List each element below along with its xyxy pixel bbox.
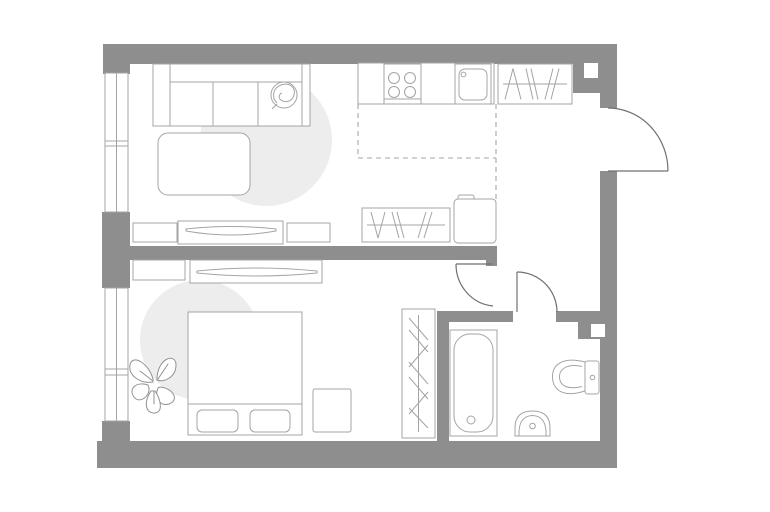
- bedroom-window: [105, 288, 128, 421]
- nightstand-icon: [313, 389, 351, 432]
- wall-bottom: [97, 441, 617, 468]
- tv-icon: [197, 268, 317, 276]
- kitchen-zone-dashed-boundary: [358, 104, 496, 199]
- floor-plan-drawing: [0, 0, 770, 512]
- bedroom-door-swing-icon: [456, 264, 493, 306]
- wall-bathroom-top-right: [556, 311, 617, 322]
- coffee-table-icon: [158, 133, 250, 195]
- duct-shaft-icon: [591, 324, 605, 337]
- wall-top: [103, 44, 617, 64]
- lower-wardrobe-hanging-clothes-icon: [362, 208, 450, 242]
- wall-bathroom-left: [437, 311, 449, 441]
- wall-middle-step: [486, 246, 497, 266]
- wall-middle: [127, 246, 497, 260]
- toilet-icon: [552, 360, 599, 394]
- wardrobe-hanging-clothes-icon: [498, 64, 572, 104]
- kitchen-counter-icon: [358, 63, 494, 104]
- bedroom-storage: [133, 260, 322, 283]
- media-cabinet-icon: [133, 223, 177, 242]
- wall-bottom-left-corner: [102, 421, 130, 442]
- bed-icon: [188, 312, 302, 435]
- nightstand-icon: [133, 260, 185, 280]
- wall-left-pier: [102, 212, 130, 288]
- media-cabinet-icon: [287, 223, 330, 242]
- washbasin-icon: [515, 411, 550, 436]
- refrigerator-icon: [454, 195, 496, 243]
- duct-shaft-icon: [584, 63, 598, 78]
- living-room-window: [105, 73, 128, 212]
- bathroom-door-swing-icon: [517, 272, 557, 312]
- bathtub-icon: [450, 330, 497, 436]
- floor-plan: [0, 0, 770, 512]
- wall-right-stub: [600, 93, 617, 108]
- sofa-icon: [153, 64, 310, 126]
- entrance-door-swing-icon: [608, 108, 668, 171]
- tv-console-icon: [133, 221, 330, 244]
- tall-wardrobe-hanging-clothes-icon: [402, 309, 435, 438]
